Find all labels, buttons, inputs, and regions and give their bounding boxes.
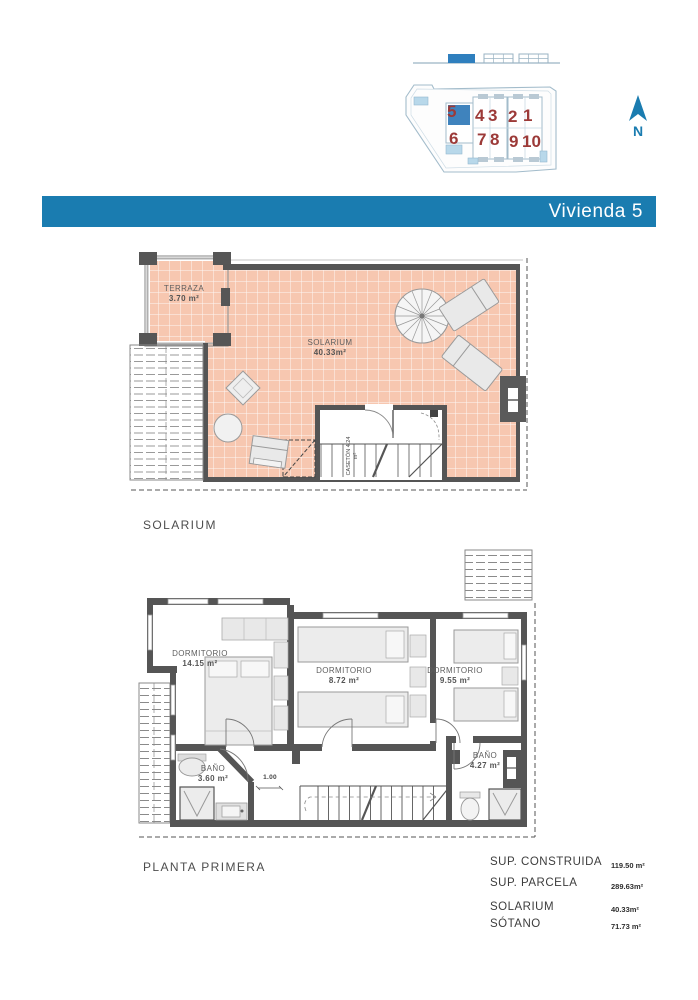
summary-value: 40.33m² bbox=[611, 905, 639, 914]
site-elevation-strip bbox=[413, 54, 560, 63]
summary-value: 119.50 m² bbox=[611, 861, 645, 870]
room-area: 9.55 m² bbox=[405, 676, 505, 686]
title-bar: Vivienda 5 bbox=[42, 196, 656, 227]
bedroom3-label: DORMITORIO 9.55 m² bbox=[405, 666, 505, 687]
chimney-shaft bbox=[500, 376, 526, 422]
summary-label: SUP. CONSTRUIDA bbox=[490, 856, 602, 868]
dimension-ticks bbox=[256, 786, 283, 790]
first-floor-plan bbox=[118, 545, 548, 845]
room-name: CASETÓN bbox=[346, 449, 352, 476]
unit-number: 5 bbox=[447, 103, 456, 120]
north-label: N bbox=[633, 124, 643, 138]
plan-sheet: 5 4 3 2 1 6 7 8 9 10 N Vivienda 5 bbox=[0, 0, 698, 1000]
room-name: SOLARIUM bbox=[280, 338, 380, 348]
page-title: Vivienda 5 bbox=[549, 201, 643, 223]
bath1-label: BAÑO 3.60 m² bbox=[163, 764, 263, 785]
room-area: 4.27 m² bbox=[435, 761, 535, 771]
unit-number: 2 bbox=[508, 108, 517, 125]
staircase bbox=[300, 786, 450, 820]
unit-number: 8 bbox=[490, 131, 499, 148]
spiral-staircase bbox=[395, 289, 449, 343]
room-name: BAÑO bbox=[435, 751, 535, 761]
room-name: DORMITORIO bbox=[405, 666, 505, 676]
unit-number: 10 bbox=[522, 133, 541, 150]
room-area: 14.15 m² bbox=[150, 659, 250, 669]
solarium-label: SOLARIUM 40.33m² bbox=[280, 338, 380, 359]
room-name: DORMITORIO bbox=[294, 666, 394, 676]
unit-number: 4 bbox=[475, 107, 484, 124]
exterior-stair-strip bbox=[139, 683, 170, 823]
dimension-label: 1.00 bbox=[258, 774, 282, 781]
unit-number: 3 bbox=[488, 107, 497, 124]
room-name: BAÑO bbox=[163, 764, 263, 774]
bedroom1-label: DORMITORIO 14.15 m² bbox=[150, 649, 250, 670]
unit-number: 9 bbox=[509, 133, 518, 150]
room-name: TERRAZA bbox=[134, 284, 234, 294]
unit-number: 7 bbox=[477, 131, 486, 148]
round-table bbox=[214, 414, 242, 442]
bedroom2-label: DORMITORIO 8.72 m² bbox=[294, 666, 394, 687]
pergola-hatch bbox=[465, 550, 532, 600]
room-name: DORMITORIO bbox=[150, 649, 250, 659]
patio-chair bbox=[249, 436, 289, 469]
bedroom1-furniture bbox=[205, 618, 288, 745]
room-area: 3.70 m² bbox=[134, 294, 234, 304]
summary-value: 71.73 m² bbox=[611, 922, 641, 931]
summary-label: SÓTANO bbox=[490, 918, 541, 930]
unit-number: 1 bbox=[523, 107, 532, 124]
exterior-stair-strip bbox=[130, 345, 203, 480]
room-area: 8.72 m² bbox=[294, 676, 394, 686]
terraza-label: TERRAZA 3.70 m² bbox=[134, 284, 234, 305]
solarium-caption: SOLARIUM bbox=[143, 518, 217, 532]
first-floor-caption: PLANTA PRIMERA bbox=[143, 860, 266, 874]
unit-number: 6 bbox=[449, 130, 458, 147]
room-area: 40.33m² bbox=[280, 348, 380, 358]
caseton-label: CASETÓN 4.24 m² bbox=[346, 434, 362, 478]
north-arrow-icon bbox=[629, 95, 647, 121]
room-area: 3.60 m² bbox=[163, 774, 263, 784]
caseton-stair-enclosure bbox=[315, 404, 447, 480]
summary-label: SUP. PARCELA bbox=[490, 877, 577, 889]
summary-label: SOLARIUM bbox=[490, 901, 554, 913]
bath2-label: BAÑO 4.27 m² bbox=[435, 751, 535, 772]
summary-value: 289.63m² bbox=[611, 882, 643, 891]
